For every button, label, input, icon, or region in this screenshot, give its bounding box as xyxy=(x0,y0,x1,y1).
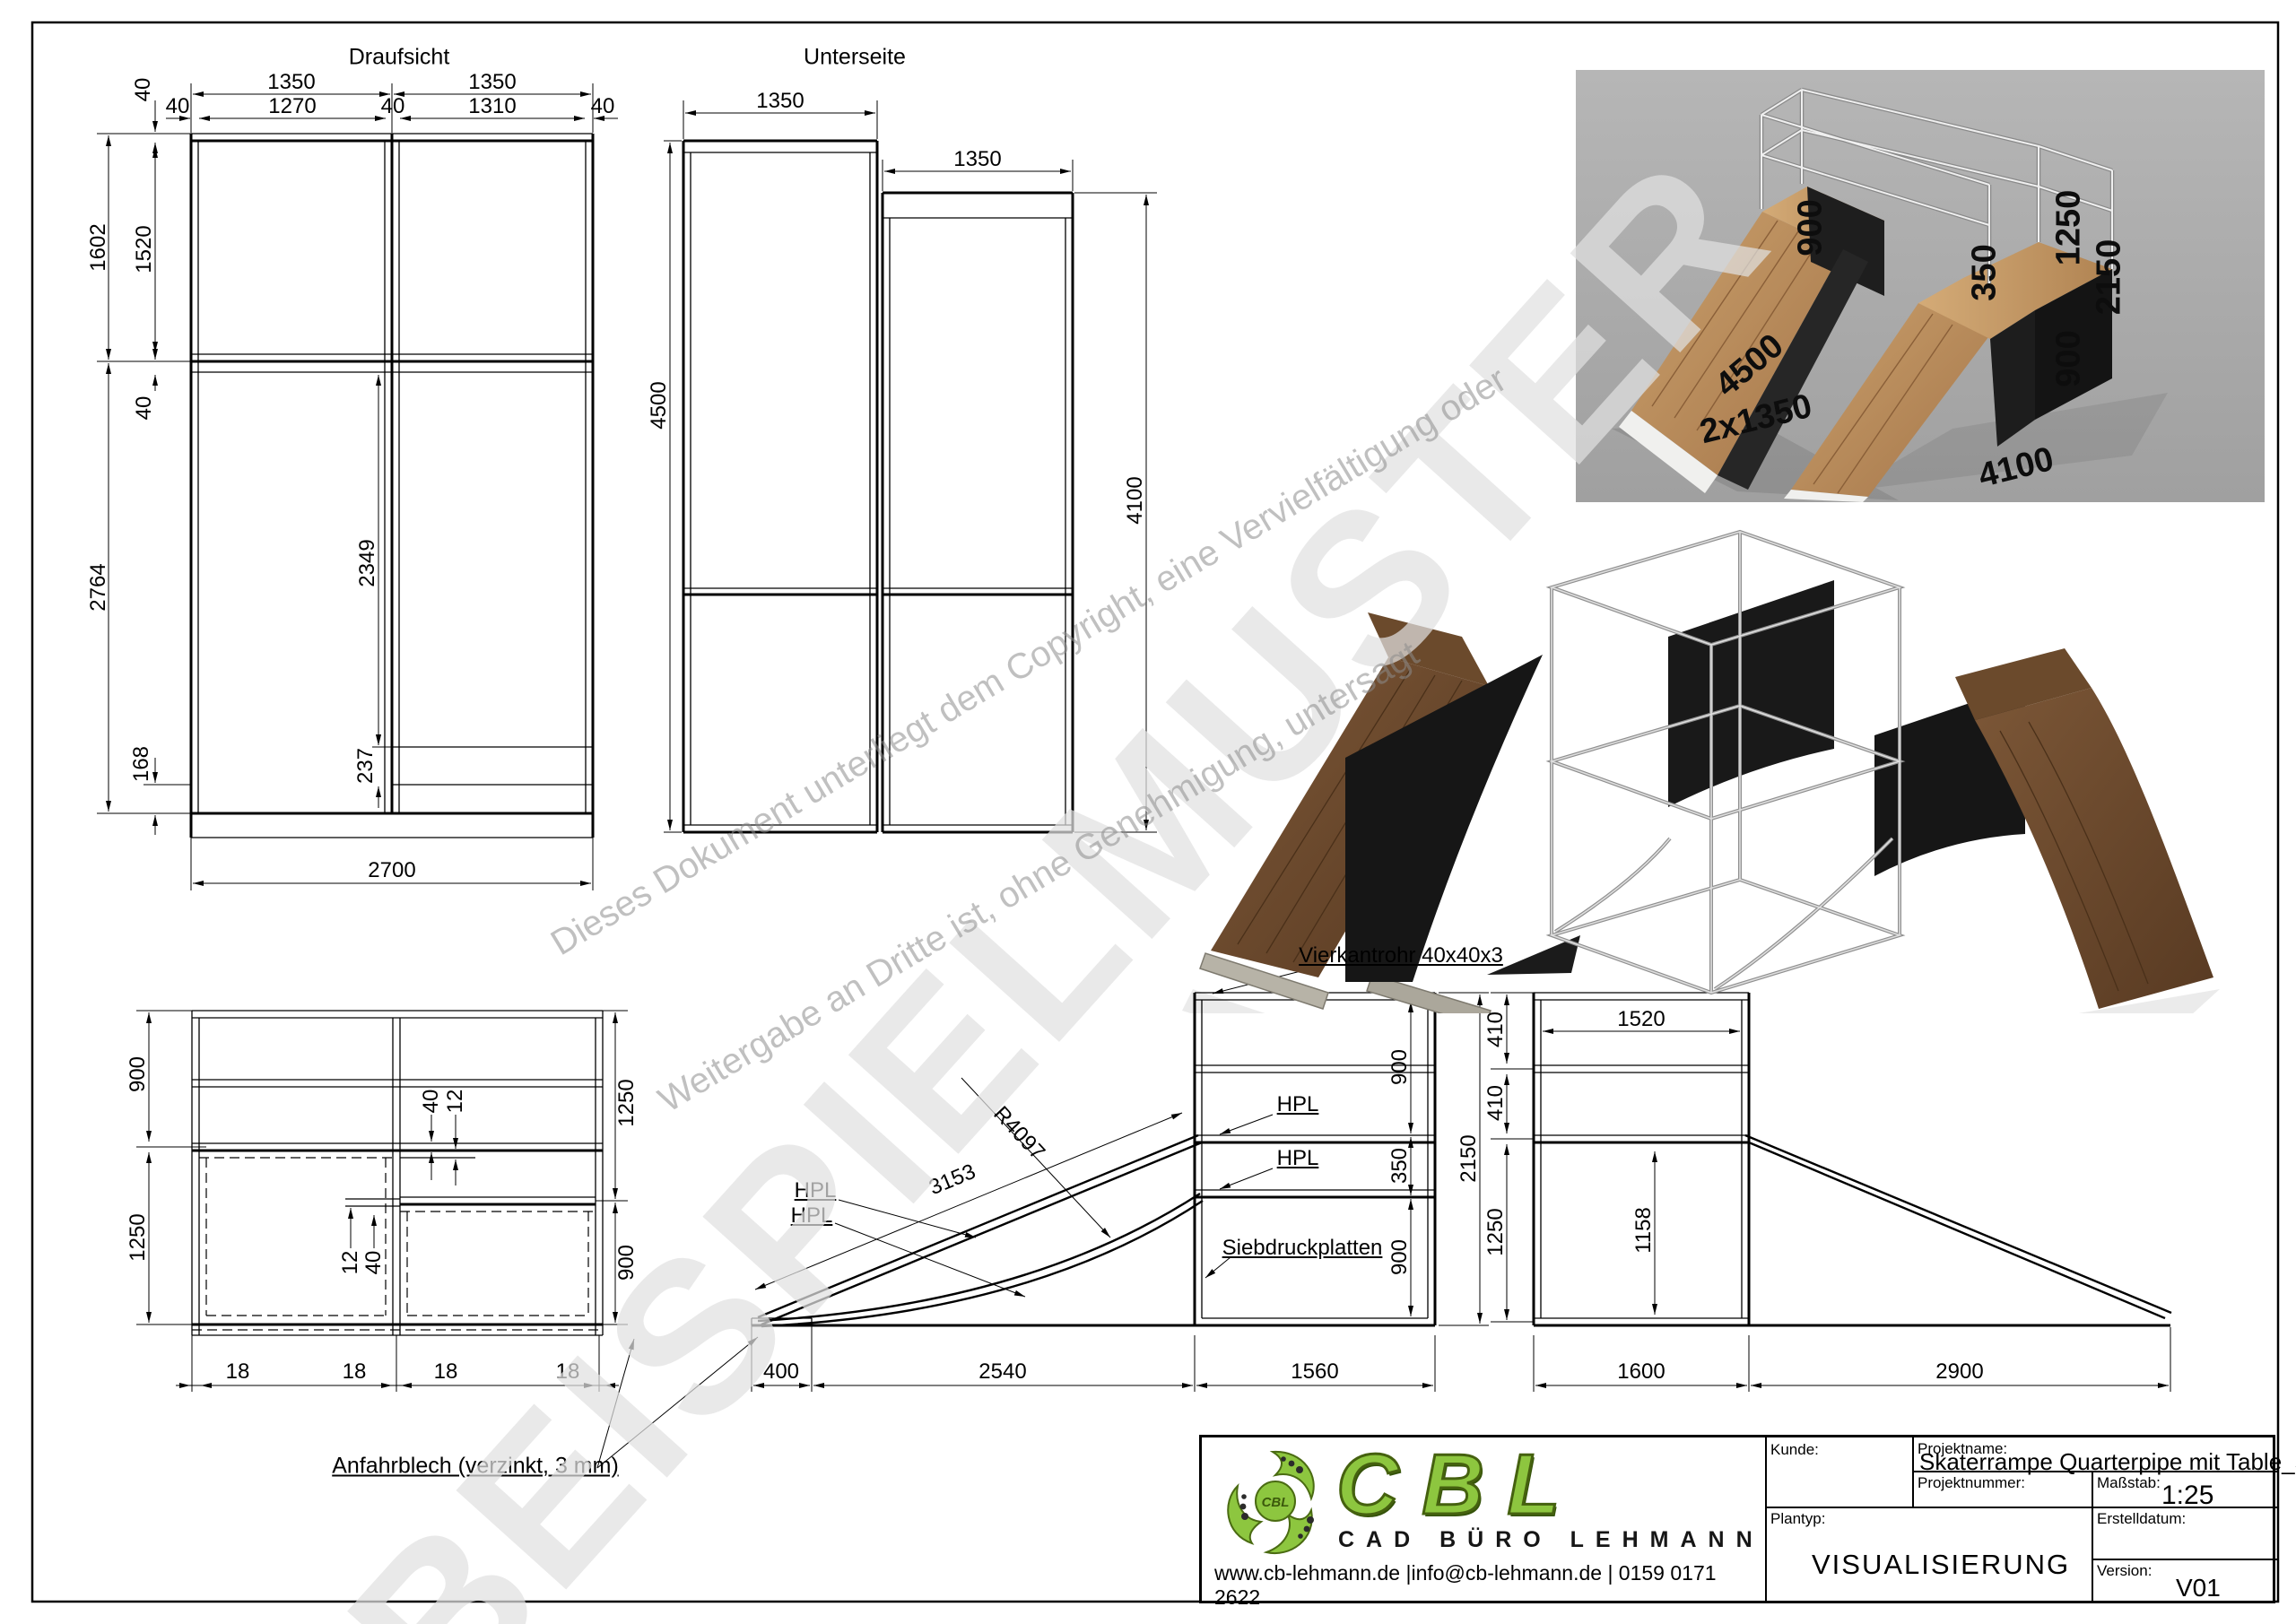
dim: 2349 xyxy=(355,539,380,586)
dim: 350 xyxy=(1966,244,2005,300)
dim: 1250 xyxy=(1483,1208,1509,1255)
cbl-logo-text: CBL xyxy=(1336,1436,1583,1534)
logo-cell: CBL CBL CAD BÜRO LEHMANN www.cb-lehmann.… xyxy=(1202,1437,1765,1601)
dim: 40 xyxy=(381,94,405,119)
dim: 2900 xyxy=(1935,1359,1983,1385)
tb-divider xyxy=(2092,1559,2278,1560)
dim: 1250 xyxy=(614,1079,639,1126)
title-block: CBL CBL CAD BÜRO LEHMANN www.cb-lehmann.… xyxy=(1199,1435,2275,1603)
anfahrblech-note: Anfahrblech (verzinkt, 3 mm) xyxy=(332,1454,619,1480)
dim: 2150 xyxy=(2091,239,2129,316)
dim: 18 xyxy=(343,1359,367,1385)
drawing-sheet: Draufsicht Unterseite 1350 1350 40 1270 … xyxy=(0,0,2296,1624)
dim: 1560 xyxy=(1291,1359,1338,1385)
dim: 40 xyxy=(166,94,190,119)
version-value: V01 xyxy=(2176,1574,2221,1602)
dim: 900 xyxy=(126,1056,151,1092)
massstab-label: Maßstab: xyxy=(2097,1474,2161,1492)
hpl-label: HPL xyxy=(795,1178,837,1203)
unterseite-title: Unterseite xyxy=(804,45,906,71)
dim: 410 xyxy=(1483,1085,1509,1121)
dim: 410 xyxy=(1483,1012,1509,1047)
vierkantrohr-label: Vierkantrohr 40x40x3 xyxy=(1299,943,1503,968)
projektname-value: Skaterrampe Quarterpipe mit Table_5 xyxy=(1919,1448,2296,1476)
dim: 1270 xyxy=(268,94,316,119)
side2-view xyxy=(1491,993,2171,1392)
dim: 900 xyxy=(1387,1239,1413,1275)
dim: 40 xyxy=(132,396,157,421)
plantyp-value: VISUALISIERUNG xyxy=(1812,1549,2070,1581)
erstelldatum-label: Erstelldatum: xyxy=(2097,1510,2186,1528)
dim: 2150 xyxy=(1457,1134,1482,1182)
dim: 12 xyxy=(338,1251,363,1275)
dim: 40 xyxy=(591,94,615,119)
dim: 1250 xyxy=(2050,190,2089,266)
dim: 1350 xyxy=(468,70,516,95)
cbl-swirl-icon: CBL xyxy=(1205,1434,1340,1568)
dim: 900 xyxy=(2050,330,2089,386)
dim: 900 xyxy=(1387,1049,1413,1085)
dim: 2764 xyxy=(86,563,111,611)
plantyp-label: Plantyp: xyxy=(1770,1510,1825,1528)
dim: 1350 xyxy=(756,89,804,114)
dim: 2700 xyxy=(368,858,415,883)
dim: 400 xyxy=(763,1359,799,1385)
tb-divider xyxy=(2092,1471,2093,1601)
dim: 18 xyxy=(434,1359,458,1385)
dim: 40 xyxy=(361,1251,387,1275)
dim: 900 xyxy=(1792,199,1831,256)
dim: 4100 xyxy=(1123,476,1148,524)
dim: 1350 xyxy=(953,147,1001,172)
dim: 1520 xyxy=(132,225,157,273)
projektnummer-label: Projektnummer: xyxy=(1918,1474,2025,1492)
siebdruckplatten-label: Siebdruckplatten xyxy=(1222,1236,1383,1261)
cbl-icon-text: CBL xyxy=(1262,1495,1290,1510)
dim: 1350 xyxy=(267,70,315,95)
version-label: Version: xyxy=(2097,1562,2152,1580)
dim: 1310 xyxy=(468,94,516,119)
dim: 1602 xyxy=(86,223,111,271)
draufsicht-title: Draufsicht xyxy=(349,45,450,71)
hpl-label: HPL xyxy=(1277,1092,1319,1117)
dim: 12 xyxy=(443,1090,468,1114)
dim: 900 xyxy=(614,1245,639,1281)
dim: 350 xyxy=(1387,1148,1413,1184)
exploded-wood-right xyxy=(1975,688,2213,1009)
dim: 237 xyxy=(353,748,378,784)
tb-divider xyxy=(1765,1437,1767,1601)
front-view xyxy=(136,1011,758,1468)
render3d-panel xyxy=(1576,70,2265,502)
dim: 18 xyxy=(556,1359,580,1385)
dim: 40 xyxy=(131,78,156,102)
dim: 18 xyxy=(226,1359,250,1385)
dim: 1250 xyxy=(126,1213,151,1261)
dim: 40 xyxy=(419,1090,444,1114)
hpl-label: HPL xyxy=(791,1203,833,1229)
dim: 2540 xyxy=(978,1359,1026,1385)
massstab-value: 1:25 xyxy=(2161,1481,2213,1511)
cbl-contact-line: www.cb-lehmann.de |info@cb-lehmann.de | … xyxy=(1214,1561,1765,1610)
dim: 168 xyxy=(129,746,154,782)
dim: 1600 xyxy=(1617,1359,1665,1385)
kunde-label: Kunde: xyxy=(1770,1441,1819,1459)
dim: 1158 xyxy=(1631,1207,1657,1254)
dim: 4500 xyxy=(647,381,672,429)
exploded-view xyxy=(1166,453,2224,1013)
dim: 1520 xyxy=(1617,1007,1665,1032)
cbl-logo-subtitle: CAD BÜRO LEHMANN xyxy=(1338,1527,1764,1553)
side-view xyxy=(752,968,1489,1392)
unterseite-view xyxy=(664,100,1157,832)
hpl-label: HPL xyxy=(1277,1146,1319,1171)
